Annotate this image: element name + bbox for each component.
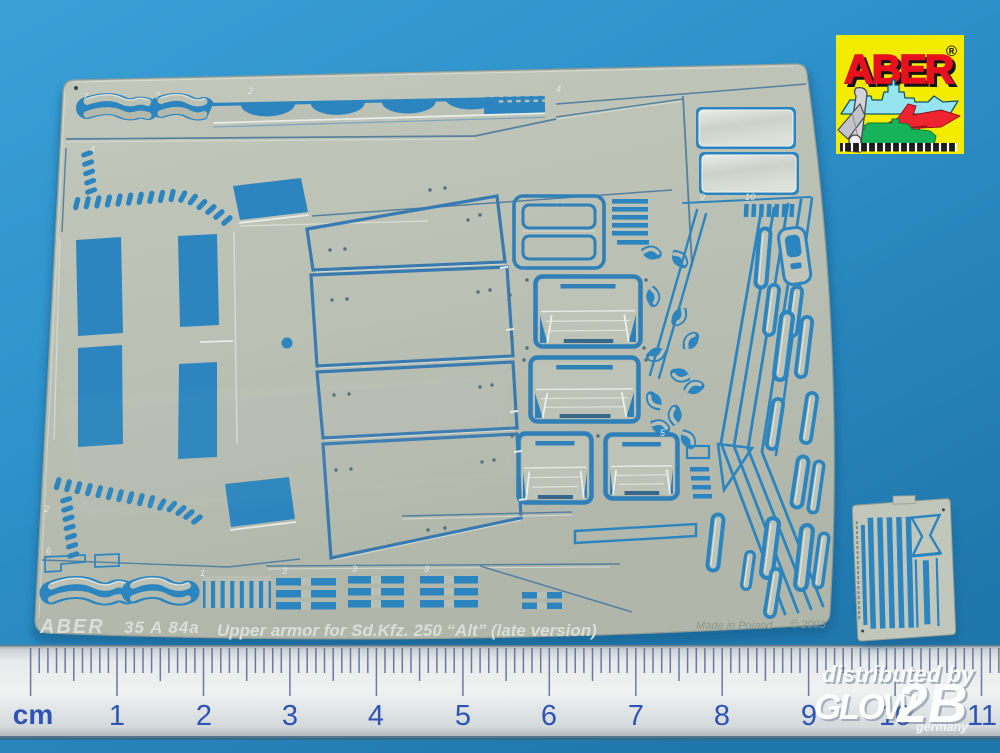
svg-text:9: 9 (700, 192, 705, 202)
svg-text:germany: germany (915, 720, 969, 734)
svg-text:3: 3 (282, 566, 287, 576)
svg-text:2: 2 (196, 700, 212, 732)
svg-text:8: 8 (714, 700, 730, 732)
svg-text:®: ® (946, 43, 957, 60)
svg-text:35 A 84a: 35 A 84a (124, 618, 200, 637)
svg-text:Made in Poland: Made in Poland (696, 620, 773, 632)
svg-text:3: 3 (352, 564, 357, 574)
svg-text:3: 3 (282, 700, 298, 732)
svg-text:4: 4 (556, 84, 561, 94)
svg-text:2: 2 (247, 86, 253, 96)
svg-text:cm: cm (13, 699, 53, 730)
svg-text:ABER: ABER (39, 616, 105, 638)
svg-text:3: 3 (424, 564, 429, 574)
svg-text:Upper armor for Sd.Kfz. 250 “A: Upper armor for Sd.Kfz. 250 “Alt” (late … (217, 621, 597, 640)
svg-text:© 2003: © 2003 (790, 619, 827, 631)
svg-text:5: 5 (455, 700, 471, 732)
svg-text:4: 4 (90, 144, 95, 154)
svg-text:6: 6 (46, 546, 51, 556)
svg-text:7: 7 (628, 700, 644, 732)
svg-text:6: 6 (541, 700, 557, 732)
svg-text:1: 1 (109, 700, 125, 732)
svg-text:4: 4 (368, 700, 384, 732)
svg-text:1: 1 (200, 568, 205, 578)
svg-text:10: 10 (745, 192, 755, 202)
svg-text:2: 2 (43, 504, 49, 514)
svg-text:11: 11 (967, 700, 997, 732)
